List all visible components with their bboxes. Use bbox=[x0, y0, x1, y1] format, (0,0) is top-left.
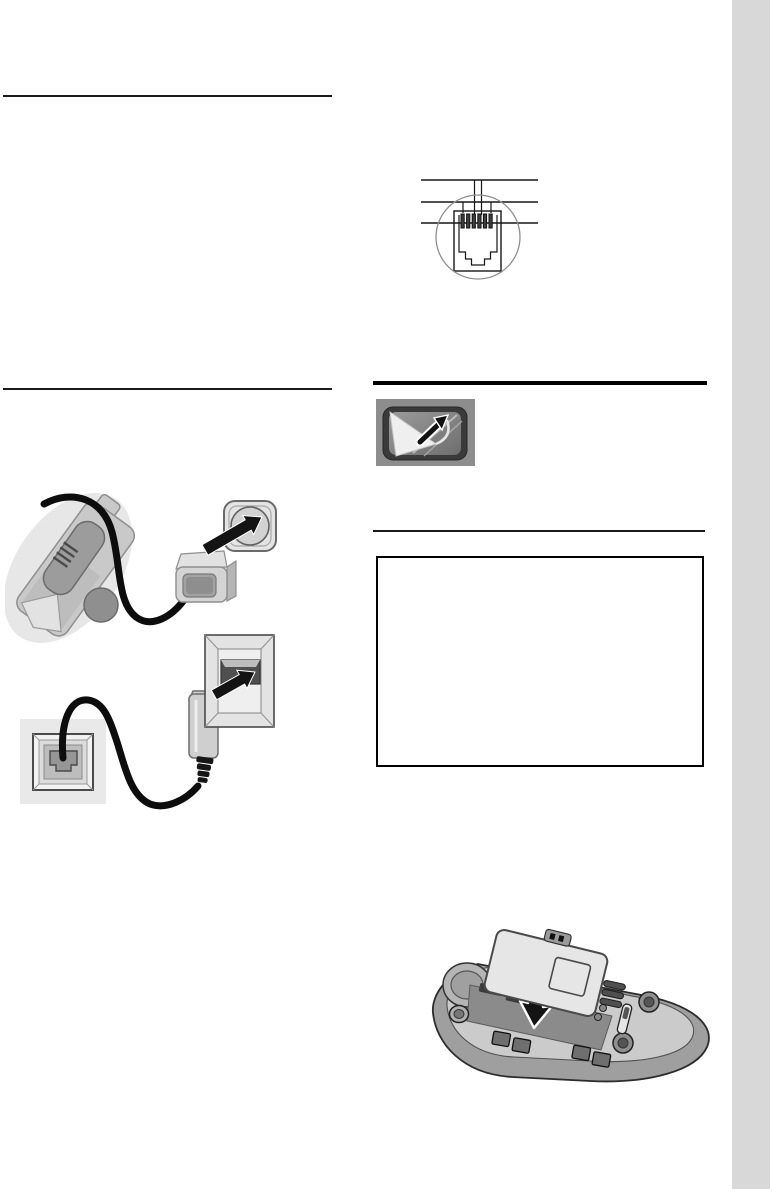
manual-page bbox=[0, 0, 772, 1192]
figure-plug-pinout bbox=[415, 158, 545, 280]
display-film-drawing bbox=[376, 399, 475, 466]
screw-top-right bbox=[639, 992, 659, 1012]
rule-right-thick bbox=[373, 381, 707, 385]
cover-ribs bbox=[599, 980, 626, 1008]
figure-charger-and-cord bbox=[5, 480, 300, 815]
figure-battery-insert bbox=[425, 915, 720, 1090]
charger-cord-drawing bbox=[5, 480, 300, 815]
rule-left-top bbox=[3, 95, 332, 97]
screw-bottom-right bbox=[613, 1033, 633, 1053]
mic-hole-1 bbox=[600, 1005, 607, 1012]
strain-relief bbox=[193, 756, 213, 784]
mains-adapter bbox=[176, 551, 236, 602]
figure-display-film bbox=[376, 399, 475, 466]
rule-left-bottom bbox=[3, 388, 332, 390]
battery-insert-drawing bbox=[425, 915, 720, 1090]
plug-pinout-drawing bbox=[415, 158, 545, 280]
page-edge-tab bbox=[732, 0, 770, 1189]
note-box bbox=[376, 556, 704, 767]
screw-left bbox=[450, 1006, 469, 1023]
mic-hole-2 bbox=[595, 1014, 602, 1021]
rule-right-thin bbox=[373, 530, 705, 532]
